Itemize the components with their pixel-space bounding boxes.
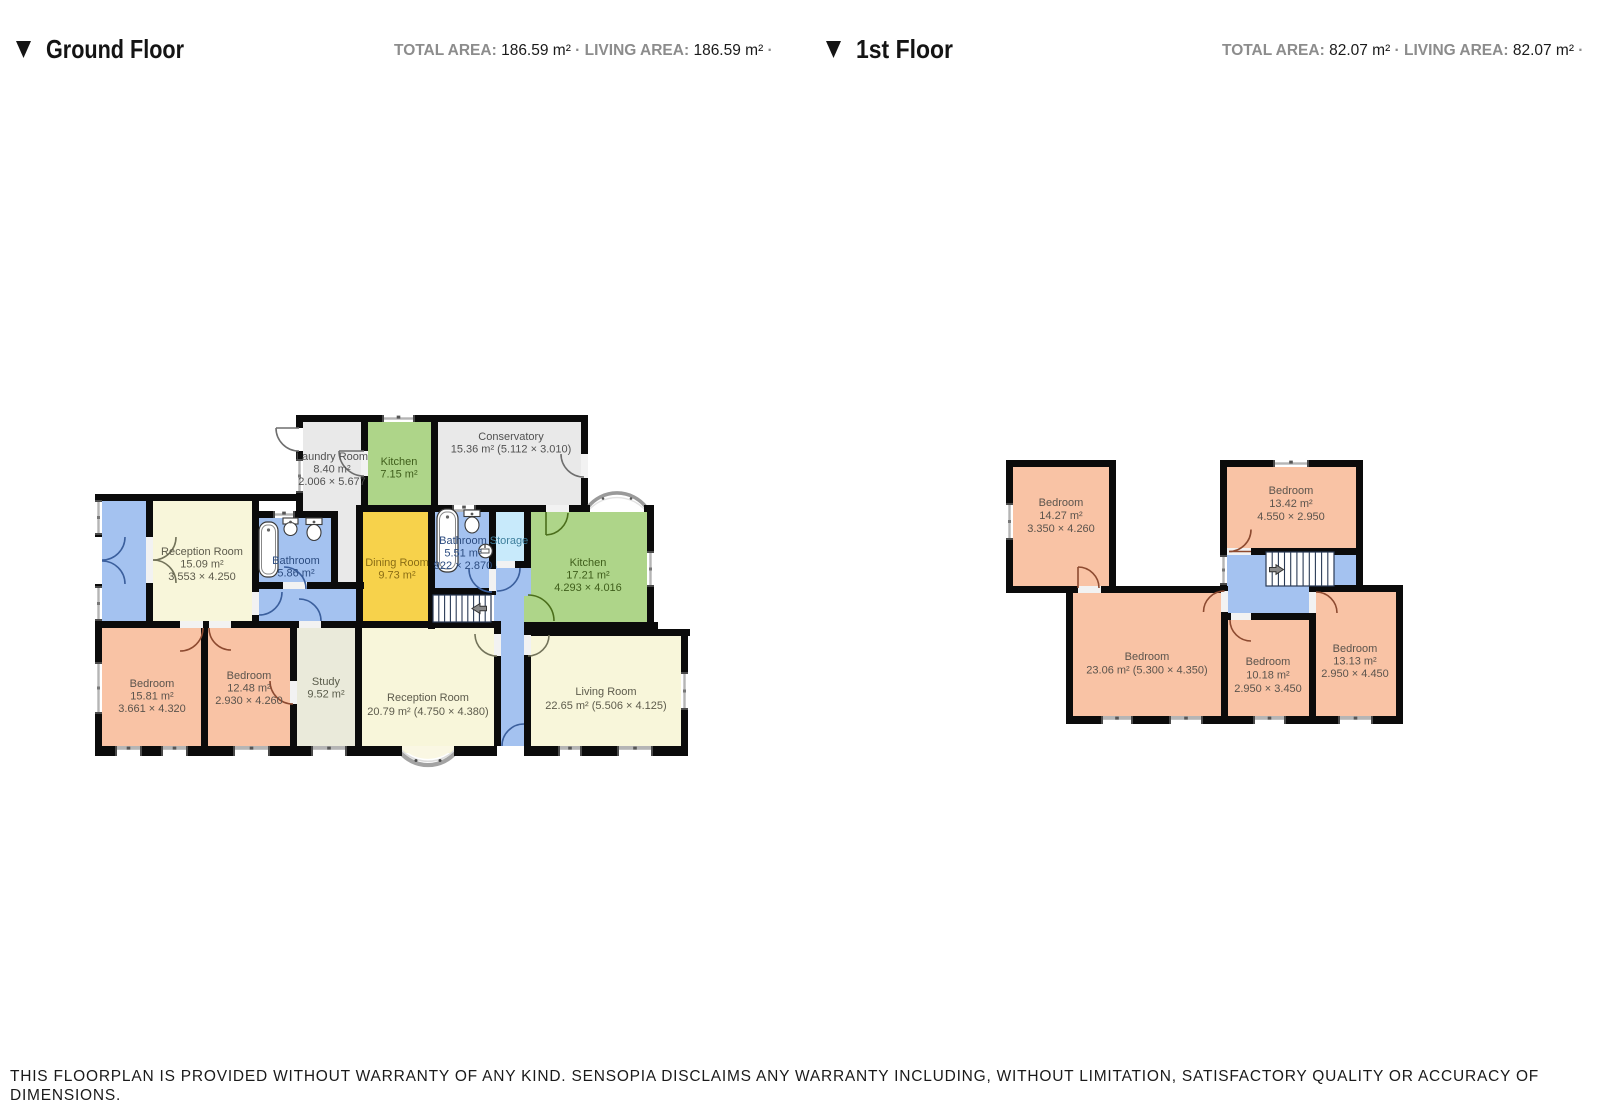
svg-text:Kitchen: Kitchen	[381, 456, 418, 468]
svg-text:7.15 m²: 7.15 m²	[380, 469, 418, 481]
svg-text:Bathroom: Bathroom	[439, 535, 487, 547]
svg-text:Bedroom: Bedroom	[1246, 656, 1291, 668]
svg-text:3.553 × 4.250: 3.553 × 4.250	[168, 571, 236, 583]
svg-text:8.40 m²: 8.40 m²	[313, 464, 351, 476]
svg-text:Ground Floor: Ground Floor	[46, 34, 184, 64]
svg-text:Conservatory: Conservatory	[478, 431, 544, 443]
svg-text:TOTAL AREA: 82.07 m² · LIVING: TOTAL AREA: 82.07 m² · LIVING AREA: 82.0…	[1222, 42, 1583, 59]
svg-text:Bedroom: Bedroom	[227, 670, 272, 682]
svg-text:Storage: Storage	[490, 535, 529, 547]
svg-text:Reception Room: Reception Room	[161, 546, 243, 558]
svg-text:Bathroom: Bathroom	[272, 555, 320, 567]
svg-text:2.950 × 3.450: 2.950 × 3.450	[1234, 683, 1302, 695]
svg-text:9.73 m²: 9.73 m²	[378, 570, 416, 582]
svg-text:922 × 2.870: 922 × 2.870	[434, 560, 492, 572]
svg-text:20.79 m² (4.750 × 4.380): 20.79 m² (4.750 × 4.380)	[367, 706, 488, 718]
svg-text:3.350 × 4.260: 3.350 × 4.260	[1027, 523, 1095, 535]
svg-text:DIMENSIONS.: DIMENSIONS.	[10, 1087, 121, 1104]
svg-text:15.81 m²: 15.81 m²	[130, 691, 174, 703]
svg-text:4.293 × 4.016: 4.293 × 4.016	[554, 582, 622, 594]
svg-text:Bedroom: Bedroom	[1125, 651, 1170, 663]
svg-text:1st Floor: 1st Floor	[856, 34, 953, 64]
svg-text:13.42 m²: 13.42 m²	[1269, 498, 1313, 510]
svg-text:Study: Study	[312, 676, 341, 688]
svg-text:Bedroom: Bedroom	[1333, 643, 1378, 655]
svg-text:15.09 m²: 15.09 m²	[180, 559, 224, 571]
svg-text:Living Room: Living Room	[575, 686, 636, 698]
svg-text:THIS FLOORPLAN IS PROVIDED WIT: THIS FLOORPLAN IS PROVIDED WITHOUT WARRA…	[10, 1068, 1539, 1085]
svg-text:22.65 m² (5.506 × 4.125): 22.65 m² (5.506 × 4.125)	[545, 700, 666, 712]
svg-text:Reception Room: Reception Room	[387, 692, 469, 704]
svg-text:4.550 × 2.950: 4.550 × 2.950	[1257, 511, 1325, 523]
svg-text:Dining Room: Dining Room	[365, 557, 429, 569]
svg-text:Kitchen: Kitchen	[570, 557, 607, 569]
svg-text:Laundry Room: Laundry Room	[296, 451, 368, 463]
svg-text:12.48 m²: 12.48 m²	[227, 683, 271, 695]
svg-text:23.06 m² (5.300 × 4.350): 23.06 m² (5.300 × 4.350)	[1086, 665, 1207, 677]
svg-text:3.661 × 4.320: 3.661 × 4.320	[118, 703, 186, 715]
svg-text:Bedroom: Bedroom	[1269, 485, 1314, 497]
svg-text:13.13 m²: 13.13 m²	[1333, 656, 1377, 668]
svg-text:2.950 × 4.450: 2.950 × 4.450	[1321, 668, 1389, 680]
svg-text:14.27 m²: 14.27 m²	[1039, 510, 1083, 522]
svg-text:17.21 m²: 17.21 m²	[566, 570, 610, 582]
svg-text:5.86 m²: 5.86 m²	[277, 568, 315, 580]
svg-text:Bedroom: Bedroom	[1039, 497, 1084, 509]
svg-text:10.18 m²: 10.18 m²	[1246, 670, 1290, 682]
svg-text:5.51 m²: 5.51 m²	[444, 548, 482, 560]
svg-text:2.930 × 4.260: 2.930 × 4.260	[215, 695, 283, 707]
svg-text:9.52 m²: 9.52 m²	[307, 689, 345, 701]
svg-text:2.006 × 5.677: 2.006 × 5.677	[298, 476, 366, 488]
svg-text:15.36 m² (5.112 × 3.010): 15.36 m² (5.112 × 3.010)	[451, 444, 572, 456]
svg-text:TOTAL AREA: 186.59 m² · LIVING: TOTAL AREA: 186.59 m² · LIVING AREA: 186…	[394, 42, 773, 59]
svg-text:Bedroom: Bedroom	[130, 678, 175, 690]
